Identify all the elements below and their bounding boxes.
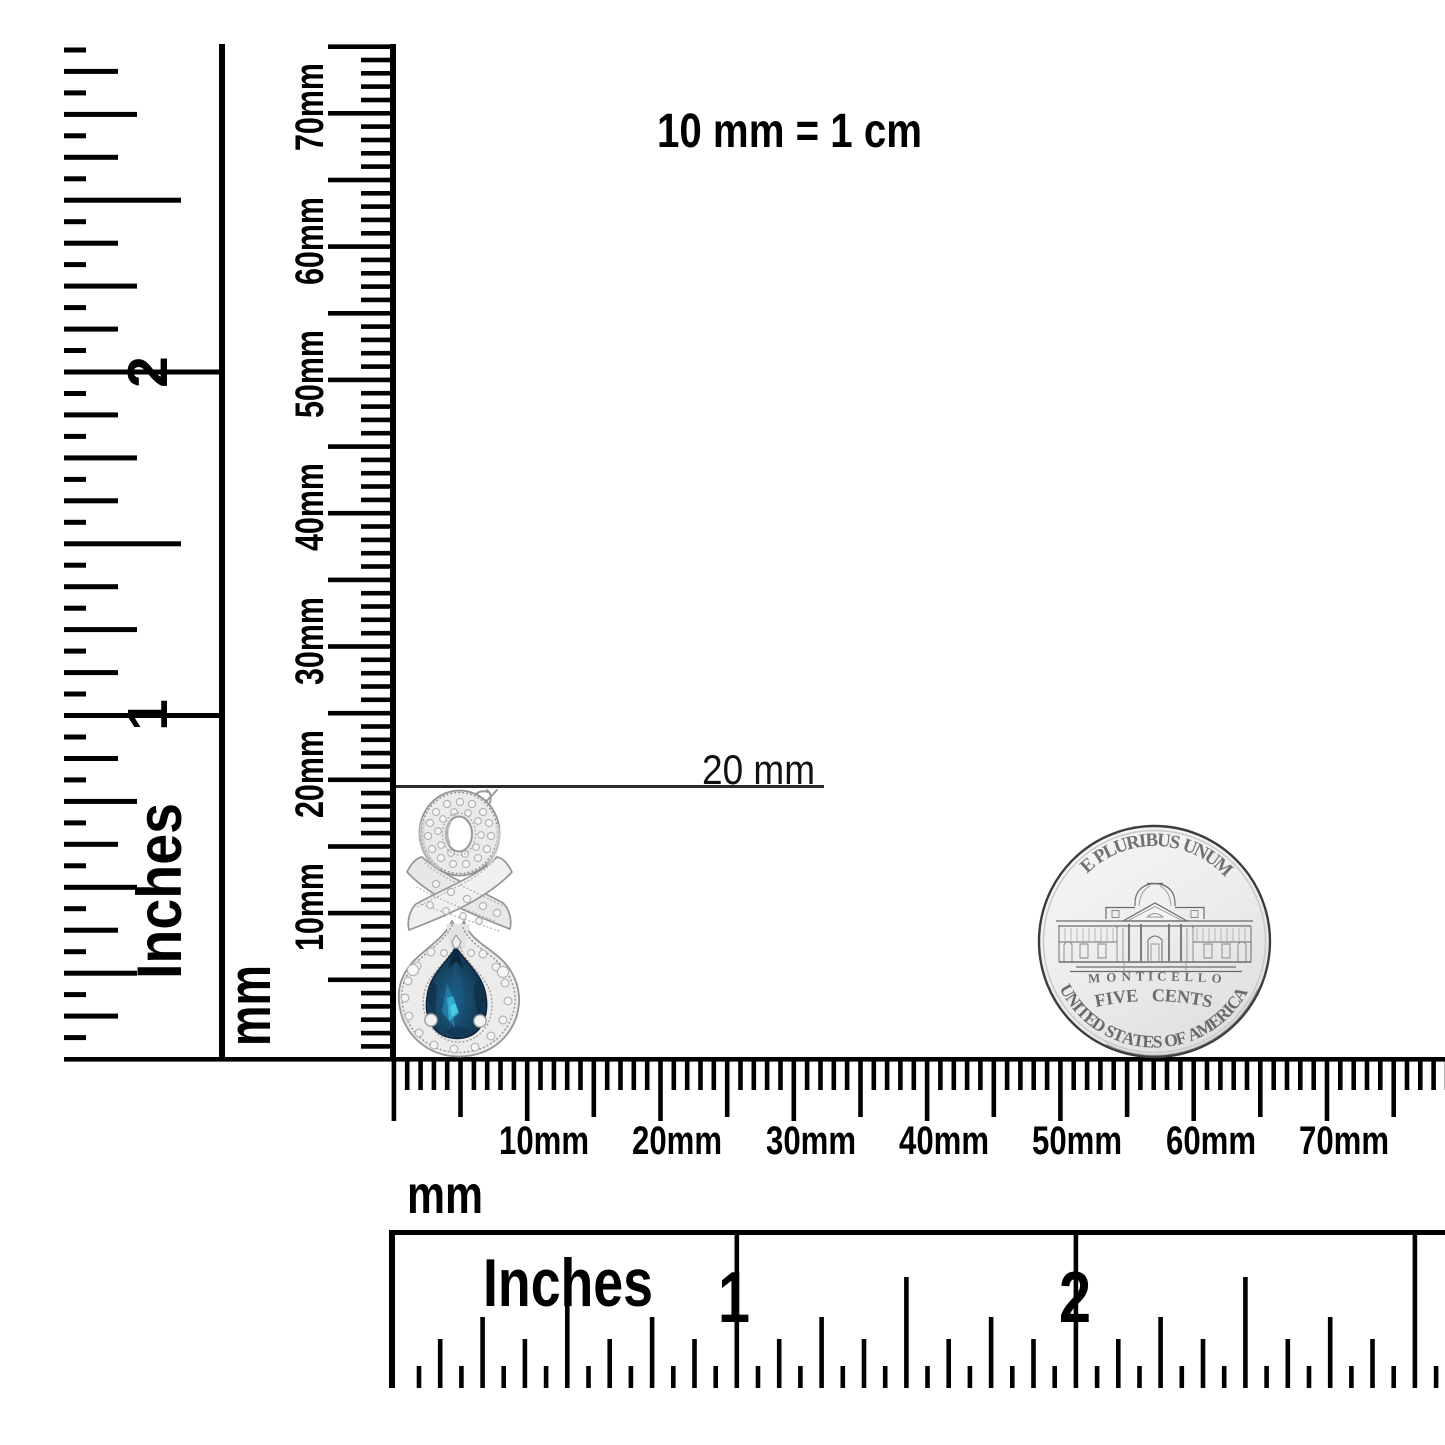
svg-text:20mm: 20mm [632,1119,722,1163]
svg-text:C: C [1152,985,1165,1005]
svg-text:O: O [1211,971,1222,986]
svg-text:40mm: 40mm [899,1119,989,1163]
svg-text:Inches: Inches [483,1245,653,1321]
svg-text:O: O [1106,970,1117,984]
svg-text:20mm: 20mm [288,730,332,818]
svg-text:2: 2 [116,356,180,388]
svg-text:30mm: 30mm [766,1119,856,1163]
svg-text:60mm: 60mm [288,197,332,285]
svg-text:2: 2 [1059,1258,1091,1338]
svg-text:50mm: 50mm [1032,1119,1122,1163]
svg-text:30mm: 30mm [288,597,332,685]
svg-text:70mm: 70mm [288,63,332,151]
svg-text:20 mm: 20 mm [702,746,815,793]
svg-text:1: 1 [718,1258,750,1338]
svg-text:mm: mm [216,965,283,1046]
svg-text:E: E [1125,985,1138,1006]
svg-text:mm: mm [407,1165,483,1225]
svg-text:40mm: 40mm [288,463,332,551]
svg-text:1: 1 [116,699,180,731]
svg-text:70mm: 70mm [1299,1119,1389,1163]
svg-text:10mm: 10mm [288,863,332,951]
svg-text:S: S [1152,1031,1162,1051]
svg-text:L: L [1184,970,1193,984]
svg-text:M: M [1088,971,1101,986]
svg-text:L: L [1197,971,1206,985]
svg-text:10mm: 10mm [499,1119,589,1163]
svg-text:10 mm = 1 cm: 10 mm = 1 cm [657,105,922,158]
svg-text:50mm: 50mm [288,330,332,418]
svg-text:Inches: Inches [125,803,195,979]
svg-text:60mm: 60mm [1166,1119,1256,1163]
